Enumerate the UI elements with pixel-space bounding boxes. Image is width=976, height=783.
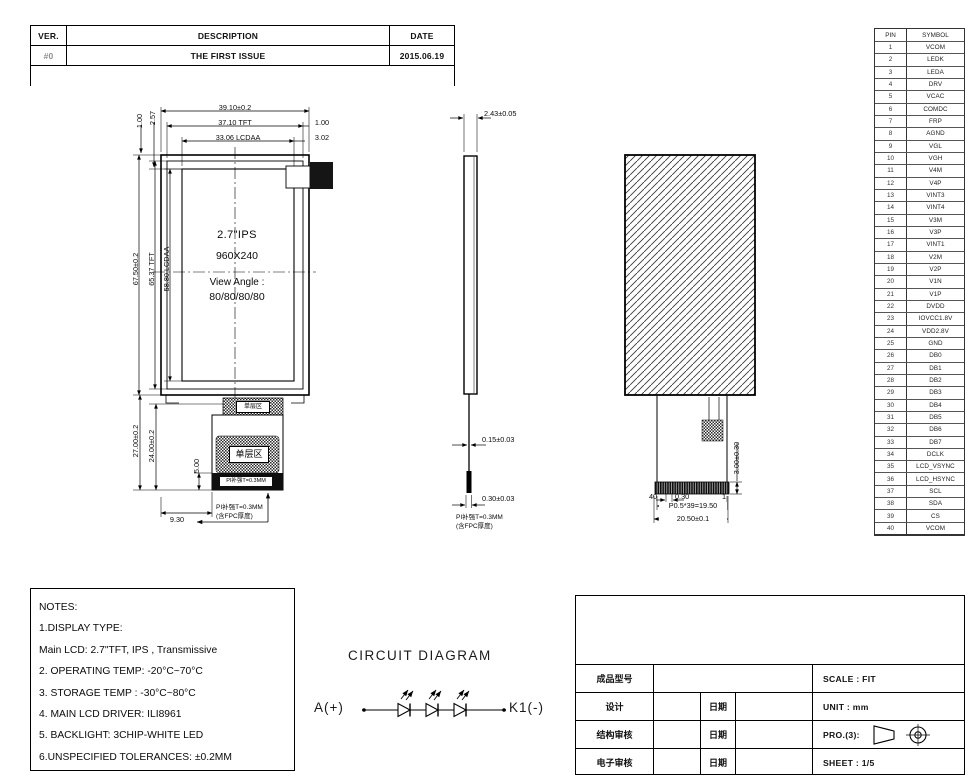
dim-right-margin-1: 1.00	[309, 119, 335, 127]
pin-symbol: CS	[907, 510, 964, 521]
pin-table-row: 8 AGND	[875, 128, 964, 140]
title-block-row-structure: 结构审核 日期 PRO.(3):	[576, 720, 964, 748]
pin-table-row: 16 V3P	[875, 227, 964, 239]
electronic-date-label: 日期	[701, 749, 736, 775]
pin-number: 5	[875, 91, 907, 102]
pin-number: 2	[875, 54, 907, 65]
pin-table-row: 14 VINT4	[875, 202, 964, 214]
pin-table-row: 6 COMDC	[875, 104, 964, 116]
pin-number: 10	[875, 153, 907, 164]
pin-table-row: 3 LEDA	[875, 67, 964, 79]
pin-symbol: FRP	[907, 116, 964, 127]
side-callout-line1: PI补强T=0.3MM	[456, 514, 503, 522]
pin-symbol: VCOM	[907, 42, 964, 53]
product-model-label: 成品型号	[576, 665, 654, 692]
pin-table-body: 1 VCOM 2 LEDK 3 LEDA 4 DRV 5 VCAC 6 COMD…	[875, 42, 964, 535]
pin-table-row: 37 SCL	[875, 486, 964, 498]
connector-pin-1: 1	[722, 493, 726, 501]
pin-table-row: 9 VGL	[875, 141, 964, 153]
dim-finger-pitch: 0.30	[675, 493, 689, 501]
pin-table-row: 18 V2M	[875, 252, 964, 264]
anode-label: A(+)	[314, 700, 344, 715]
note-line: 1.DISPLAY TYPE:	[39, 618, 294, 639]
design-date-label: 日期	[701, 693, 736, 720]
pin-symbol: V3P	[907, 227, 964, 238]
pin-table-row: 27 DB1	[875, 363, 964, 375]
pin-number: 20	[875, 276, 907, 287]
cathode-label: K1(-)	[509, 700, 544, 715]
pin-symbol: VINT3	[907, 190, 964, 201]
electronic-review-label: 电子审核	[576, 749, 654, 775]
pin-number: 29	[875, 387, 907, 398]
dim-thickness: 2.43±0.05	[484, 110, 516, 118]
pin-number: 27	[875, 363, 907, 374]
dim-fpc-width: 20.50±0.1	[659, 515, 727, 523]
projection-label: PRO.(3):	[823, 730, 860, 740]
sheet-value: SHEET : 1/5	[813, 749, 875, 775]
note-line: 4. MAIN LCD DRIVER: ILI8961	[39, 704, 294, 725]
product-model-value	[654, 665, 813, 692]
single-layer-zone-label: 单层区	[229, 446, 269, 463]
pin-table-row: 15 V3M	[875, 215, 964, 227]
pin-number: 3	[875, 67, 907, 78]
pin-number: 1	[875, 42, 907, 53]
projection-cell: PRO.(3):	[813, 721, 940, 748]
panel-size-label: 2.7"IPS	[205, 229, 269, 241]
pin-number: 31	[875, 412, 907, 423]
dim-outline-width: 39.10±0.2	[200, 104, 270, 112]
pin-number: 13	[875, 190, 907, 201]
pin-number: 8	[875, 128, 907, 139]
dim-tft-width: 37.10 TFT	[200, 119, 270, 127]
pin-number: 33	[875, 437, 907, 448]
note-line: NOTES:	[39, 597, 294, 618]
dim-lcdaa-height: 58.80 LCDAA	[163, 234, 171, 304]
single-layer-zone-small-label: 单层区	[236, 401, 270, 413]
pin-symbol: SCL	[907, 486, 964, 497]
pin-symbol: V3M	[907, 215, 964, 226]
pin-symbol: V1P	[907, 289, 964, 300]
pin-symbol: VINT1	[907, 239, 964, 250]
pin-number: 9	[875, 141, 907, 152]
dim-top-margin-2: 2.57	[149, 104, 157, 132]
pin-symbol: V4P	[907, 178, 964, 189]
design-name-cell	[654, 693, 701, 720]
pin-symbol: LEDA	[907, 67, 964, 78]
revision-table: VER. DESCRIPTION DATE #0 THE FIRST ISSUE…	[30, 25, 455, 86]
pin-symbol: LCD_HSYNC	[907, 473, 964, 484]
pin-number: 40	[875, 523, 907, 534]
pin-number: 18	[875, 252, 907, 263]
pin-symbol: DB7	[907, 437, 964, 448]
note-line: Main LCD: 2.7"TFT, IPS , Transmissive	[39, 640, 294, 661]
pin-symbol: DB0	[907, 350, 964, 361]
dim-fpc-length-1: 27.00±0.2	[132, 406, 140, 476]
pin-table-row: 39 CS	[875, 510, 964, 522]
pin-symbol: V2P	[907, 264, 964, 275]
pin-symbol: VGL	[907, 141, 964, 152]
pin-table: PIN SYMBOL 1 VCOM 2 LEDK 3 LEDA 4 DRV 5 …	[874, 28, 965, 536]
pin-table-row: 7 FRP	[875, 116, 964, 128]
note-line: 3. STORAGE TEMP : -30°C~80°C	[39, 683, 294, 704]
pin-number: 17	[875, 239, 907, 250]
pin-number: 25	[875, 338, 907, 349]
pin-symbol: VDD2.8V	[907, 326, 964, 337]
pi-stiffener-strip-label: PI补强T=0.3MM	[220, 477, 272, 486]
pin-header-symbol: SYMBOL	[907, 29, 964, 41]
pin-symbol: VGH	[907, 153, 964, 164]
pin-symbol: DVDD	[907, 301, 964, 312]
pin-table-row: 19 V2P	[875, 264, 964, 276]
pin-number: 26	[875, 350, 907, 361]
revision-header-ver: VER.	[31, 26, 67, 45]
circuit-diagram-title: CIRCUIT DIAGRAM	[348, 648, 492, 663]
dim-stiffener-thickness: 0.30±0.03	[482, 495, 514, 503]
dim-pitch-total: P0.5*39=19.50	[659, 502, 727, 510]
pin-symbol: AGND	[907, 128, 964, 139]
pin-symbol: DCLK	[907, 449, 964, 460]
revision-header-date: DATE	[390, 26, 454, 45]
pin-symbol: VCAC	[907, 91, 964, 102]
pin-number: 11	[875, 165, 907, 176]
pin-number: 4	[875, 79, 907, 90]
connector-pin-40: 40	[649, 493, 657, 501]
pin-symbol: IOVCC1.8V	[907, 313, 964, 324]
note-line: 6.UNSPECIFIED TOLERANCES: ±0.2MM	[39, 747, 294, 768]
structure-date-cell	[736, 721, 813, 748]
pin-table-row: 30 DB4	[875, 400, 964, 412]
pin-table-row: 34 DCLK	[875, 449, 964, 461]
third-angle-projection-icon	[870, 724, 940, 746]
pin-number: 32	[875, 424, 907, 435]
pin-table-header: PIN SYMBOL	[875, 29, 964, 42]
pin-table-row: 25 GND	[875, 338, 964, 350]
pin-symbol: LCD_VSYNC	[907, 461, 964, 472]
pin-symbol: DB2	[907, 375, 964, 386]
dim-stiffener-length: 5.00	[193, 451, 201, 481]
pin-symbol: SDA	[907, 498, 964, 509]
structure-review-label: 结构审核	[576, 721, 654, 748]
notes-box: NOTES:1.DISPLAY TYPE: Main LCD: 2.7"TFT,…	[30, 588, 295, 771]
design-date-cell	[736, 693, 813, 720]
pin-number: 35	[875, 461, 907, 472]
pin-symbol: VINT4	[907, 202, 964, 213]
pin-table-row: 10 VGH	[875, 153, 964, 165]
pin-table-row: 20 V1N	[875, 276, 964, 288]
pin-number: 39	[875, 510, 907, 521]
pin-symbol: VCOM	[907, 523, 964, 534]
dim-tft-height: 65.37 TFT	[148, 234, 156, 304]
front-callout-line1: PI补强T=0.3MM	[216, 504, 263, 512]
pin-table-row: 31 DB5	[875, 412, 964, 424]
pin-table-row: 23 IOVCC1.8V	[875, 313, 964, 325]
pin-table-row: 24 VDD2.8V	[875, 326, 964, 338]
pin-table-row: 21 V1P	[875, 289, 964, 301]
pin-table-row: 13 VINT3	[875, 190, 964, 202]
pin-symbol: LEDK	[907, 54, 964, 65]
pin-number: 6	[875, 104, 907, 115]
revision-header-description: DESCRIPTION	[67, 26, 390, 45]
title-block: 成品型号 SCALE : FIT 设计 日期 UNIT : mm 结构审核 日期…	[575, 595, 965, 775]
pin-number: 14	[875, 202, 907, 213]
pin-number: 28	[875, 375, 907, 386]
pin-symbol: V1N	[907, 276, 964, 287]
revision-version: #0	[31, 46, 67, 65]
pin-symbol: DB1	[907, 363, 964, 374]
pin-table-row: 4 DRV	[875, 79, 964, 91]
side-view	[450, 114, 491, 508]
pin-number: 24	[875, 326, 907, 337]
pin-number: 16	[875, 227, 907, 238]
electronic-review-name-cell	[654, 749, 701, 775]
pin-table-row: 28 DB2	[875, 375, 964, 387]
pin-table-row: 2 LEDK	[875, 54, 964, 66]
revision-header-row: VER. DESCRIPTION DATE	[31, 26, 454, 46]
pin-table-row: 5 VCAC	[875, 91, 964, 103]
pin-number: 15	[875, 215, 907, 226]
structure-review-name-cell	[654, 721, 701, 748]
pin-number: 37	[875, 486, 907, 497]
pin-table-row: 38 SDA	[875, 498, 964, 510]
pin-symbol: GND	[907, 338, 964, 349]
dim-outline-height: 67.50±0.2	[132, 234, 140, 304]
pin-table-row: 17 VINT1	[875, 239, 964, 251]
dim-connector-height: 3.00±0.30	[733, 423, 741, 493]
pin-header-pin: PIN	[875, 29, 907, 41]
pin-symbol: COMDC	[907, 104, 964, 115]
panel-resolution-label: 960X240	[205, 252, 269, 260]
pin-symbol: DB6	[907, 424, 964, 435]
revision-description: THE FIRST ISSUE	[67, 46, 390, 65]
pin-table-row: 26 DB0	[875, 350, 964, 362]
unit-value: UNIT : mm	[813, 693, 869, 720]
pin-symbol: DB4	[907, 400, 964, 411]
dim-fpc-thickness: 0.15±0.03	[482, 436, 514, 444]
pin-number: 30	[875, 400, 907, 411]
pin-number: 23	[875, 313, 907, 324]
dim-top-margin-1: 1.00	[136, 107, 144, 135]
title-block-row-electronic: 电子审核 日期 SHEET : 1/5	[576, 748, 964, 775]
title-block-row-design: 设计 日期 UNIT : mm	[576, 692, 964, 720]
dim-fpc-offset: 9.30	[157, 516, 197, 524]
pin-table-row: 22 DVDD	[875, 301, 964, 313]
scale-value: SCALE : FIT	[813, 665, 876, 692]
pin-table-row: 11 V4M	[875, 165, 964, 177]
pin-number: 36	[875, 473, 907, 484]
pin-number: 38	[875, 498, 907, 509]
revision-empty-row	[31, 66, 454, 86]
title-block-row-product: 成品型号 SCALE : FIT	[576, 664, 964, 692]
view-angle-title: View Angle :	[205, 279, 269, 287]
pin-symbol: DB3	[907, 387, 964, 398]
pin-number: 19	[875, 264, 907, 275]
pin-number: 7	[875, 116, 907, 127]
note-line: 5. BACKLIGHT: 3CHIP-WHITE LED	[39, 725, 294, 746]
pin-table-row: 33 DB7	[875, 437, 964, 449]
dim-right-margin-2: 3.02	[309, 134, 335, 142]
side-callout-line2: (含FPC厚度)	[456, 523, 493, 531]
dim-lcdaa-width: 33.06 LCDAA	[198, 134, 278, 142]
pin-symbol: V2M	[907, 252, 964, 263]
pin-table-row: 36 LCD_HSYNC	[875, 473, 964, 485]
revision-row: #0 THE FIRST ISSUE 2015.06.19	[31, 46, 454, 66]
dim-fpc-length-2: 24.00±0.2	[148, 411, 156, 481]
drawing-sheet: VER. DESCRIPTION DATE #0 THE FIRST ISSUE…	[0, 0, 976, 783]
pin-symbol: DB5	[907, 412, 964, 423]
view-angle-value: 80/80/80/80	[201, 293, 273, 301]
pin-table-row: 32 DB6	[875, 424, 964, 436]
pin-number: 21	[875, 289, 907, 300]
pin-symbol: DRV	[907, 79, 964, 90]
pin-table-row: 40 VCOM	[875, 523, 964, 535]
pin-table-row: 1 VCOM	[875, 42, 964, 54]
pin-symbol: V4M	[907, 165, 964, 176]
pin-table-row: 29 DB3	[875, 387, 964, 399]
pin-table-row: 35 LCD_VSYNC	[875, 461, 964, 473]
revision-date: 2015.06.19	[390, 46, 454, 65]
pin-table-row: 12 V4P	[875, 178, 964, 190]
design-label: 设计	[576, 693, 654, 720]
note-line: 2. OPERATING TEMP: -20°C~70°C	[39, 661, 294, 682]
pin-number: 34	[875, 449, 907, 460]
led-circuit	[362, 690, 506, 717]
front-callout-line2: (含FPC厚度)	[216, 513, 253, 521]
pin-number: 22	[875, 301, 907, 312]
pin-number: 12	[875, 178, 907, 189]
electronic-date-cell	[736, 749, 813, 775]
structure-date-label: 日期	[701, 721, 736, 748]
